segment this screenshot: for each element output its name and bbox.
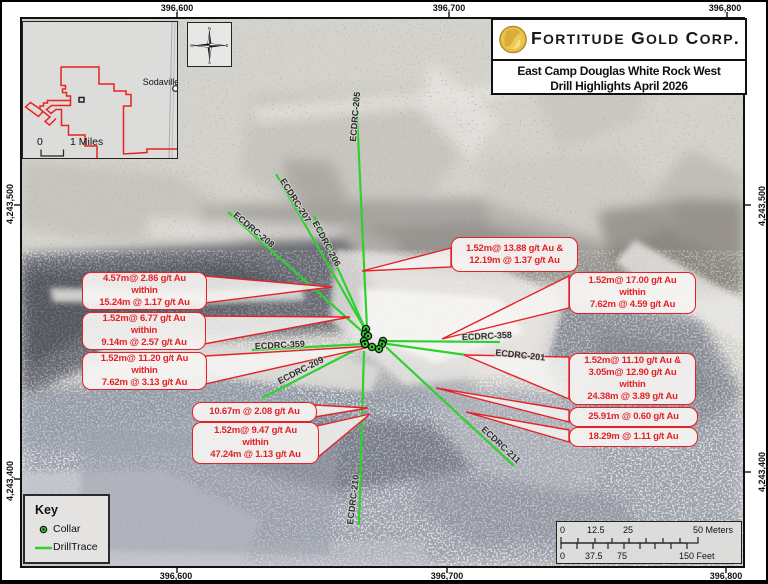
svg-text:37.5: 37.5 — [585, 551, 603, 561]
svg-text:Sodaville: Sodaville — [143, 77, 177, 87]
svg-text:25: 25 — [623, 525, 633, 535]
svg-text:75: 75 — [617, 551, 627, 561]
svg-text:12.5: 12.5 — [587, 525, 605, 535]
svg-text:W: W — [190, 43, 194, 48]
svg-text:E: E — [226, 43, 229, 48]
svg-text:S: S — [208, 60, 211, 65]
svg-text:150 Feet: 150 Feet — [679, 551, 715, 561]
svg-text:0: 0 — [560, 525, 565, 535]
svg-text:N: N — [208, 26, 211, 31]
svg-text:50 Meters: 50 Meters — [693, 525, 734, 535]
svg-text:1 Miles: 1 Miles — [70, 136, 103, 148]
svg-text:0: 0 — [560, 551, 565, 561]
svg-text:0: 0 — [37, 136, 43, 148]
